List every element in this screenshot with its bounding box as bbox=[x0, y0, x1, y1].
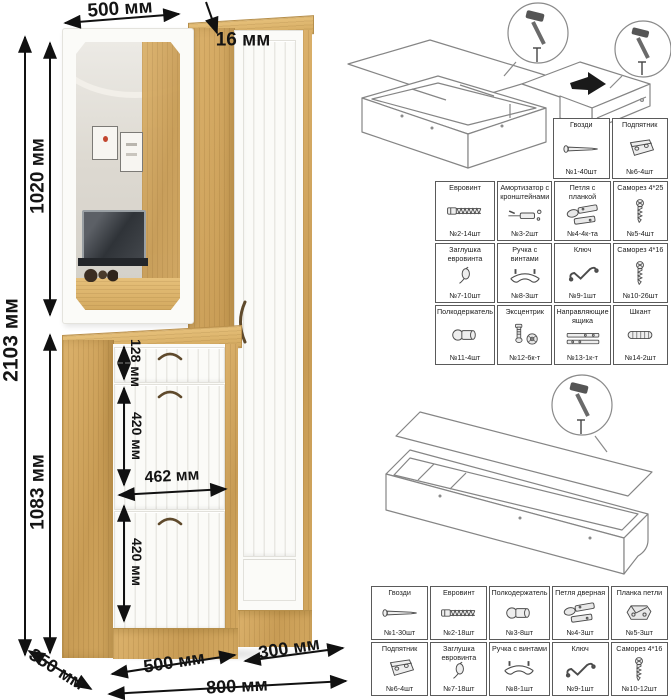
shelfpin-icon bbox=[446, 323, 484, 347]
footpad-icon bbox=[381, 657, 419, 681]
picture-marks bbox=[126, 153, 137, 156]
hardware-item-qty: №9-1шт bbox=[567, 684, 594, 693]
key-icon bbox=[561, 657, 599, 681]
hardware-item: Полкодержатель№3-8шт bbox=[489, 586, 549, 640]
hardware-item-qty: №1-30шт bbox=[384, 628, 415, 637]
wardrobe-right-edge bbox=[303, 30, 312, 610]
hardware-item: Подпятник№6-4шт bbox=[371, 642, 428, 696]
hardware-item: Гвозди№1-30шт bbox=[371, 586, 428, 640]
shelfpin-icon bbox=[500, 601, 538, 625]
hardware-item: Саморез 4*16№10-12шт bbox=[611, 642, 668, 696]
mirror-shelf-reflection bbox=[76, 278, 180, 310]
hammer-callout bbox=[500, 0, 574, 82]
wardrobe-door bbox=[234, 30, 305, 612]
hinge-icon bbox=[561, 601, 599, 625]
mirror-picture-frame bbox=[120, 132, 143, 172]
hardware-item: Евровинт№2-18шт bbox=[430, 586, 487, 640]
hardware-item-qty: №4-4к-та bbox=[567, 229, 598, 238]
hardware-item-qty: №3-2шт bbox=[511, 229, 538, 238]
hardware-item-label: Ключ bbox=[571, 645, 588, 654]
hardware-item: Саморез 4*16№10-26шт bbox=[613, 243, 668, 303]
hingeplate-icon bbox=[620, 601, 658, 625]
dowel-icon bbox=[621, 323, 659, 347]
hardware-item-qty: №8-1шт bbox=[506, 684, 533, 693]
cam-icon bbox=[506, 323, 544, 347]
hardware-item: Шкант№14-2шт bbox=[613, 305, 668, 365]
nail-icon bbox=[381, 601, 419, 625]
footpad-icon bbox=[621, 137, 659, 161]
hardware-item-qty: №3-8шт bbox=[506, 628, 533, 637]
hardware-item-qty: №5-3шт bbox=[626, 628, 653, 637]
hardware-item: Саморез 4*25№5-4шт bbox=[613, 181, 668, 241]
wardrobe-door-rail bbox=[243, 559, 296, 601]
hardware-item: Петля с планкой№4-4к-та bbox=[554, 181, 610, 241]
hardware-item-label: Амортизатор с кронштейнами bbox=[499, 184, 550, 201]
handle-icon bbox=[506, 265, 544, 289]
hardware-item-label: Ключ bbox=[574, 246, 591, 255]
key-icon bbox=[564, 261, 602, 285]
hardware-item: Ручка с винтами№8-3шт bbox=[497, 243, 552, 303]
hardware-item-qty: №2-14шт bbox=[449, 229, 480, 238]
cap-icon bbox=[440, 660, 478, 684]
hardware-item-label: Саморез 4*16 bbox=[617, 246, 663, 255]
hardware-item-label: Саморез 4*25 bbox=[617, 184, 663, 193]
euroscrew-icon bbox=[440, 601, 478, 625]
hardware-item-qty: №9-1шт bbox=[569, 291, 596, 300]
nail-icon bbox=[562, 137, 600, 161]
hardware-item: Заглушка евровинта№7-10шт bbox=[435, 243, 495, 303]
hardware-item-qty: №7-10шт bbox=[449, 291, 480, 300]
hardware-item-label: Евровинт bbox=[449, 184, 481, 193]
hardware-item-label: Ручка с винтами bbox=[492, 645, 547, 654]
hardware-item-label: Полкодержатель bbox=[437, 308, 493, 317]
hardware-table-bottom: Гвозди№1-30шт Евровинт№2-18шт Полкодержа… bbox=[371, 586, 668, 696]
hardware-item-label: Гвозди bbox=[570, 121, 593, 130]
hardware-item: Направляющие ящика№13-1к-т bbox=[554, 305, 610, 365]
hardware-item-label: Эксцентрик bbox=[506, 308, 544, 317]
hardware-item-label: Планка петли bbox=[617, 589, 663, 598]
hardware-item-label: Петля дверная bbox=[555, 589, 605, 598]
dimension-label-upper-height: 1020 мм bbox=[29, 138, 48, 214]
hardware-item-qty: №6-4шт bbox=[386, 684, 413, 693]
hardware-item: Ключ№9-1шт bbox=[552, 642, 609, 696]
wardrobe-door-panel bbox=[243, 40, 296, 557]
dimension-label-thickness: 16 мм bbox=[216, 31, 271, 50]
hardware-item-label: Саморез 4*16 bbox=[616, 645, 662, 654]
mirror-tv-stand bbox=[78, 258, 148, 266]
hardware-item: Полкодержатель№11-4шт bbox=[435, 305, 495, 365]
hammer-callout bbox=[545, 372, 619, 456]
hardware-item-label: Заглушка евровинта bbox=[437, 246, 493, 263]
hardware-item-label: Подпятник bbox=[622, 121, 657, 130]
hardware-item: Подпятник№6-4шт bbox=[612, 118, 669, 179]
hardware-item-qty: №11-4шт bbox=[450, 353, 481, 362]
hardware-item-qty: №2-18шт bbox=[443, 628, 474, 637]
drawer-handle-icon bbox=[157, 351, 183, 361]
hardware-item-label: Подпятник bbox=[382, 645, 417, 654]
hardware-table-top-row1: Гвозди№1-40шт Подпятник№6-4шт bbox=[553, 118, 668, 179]
mirror-glass bbox=[76, 42, 180, 310]
hardware-item-label: Направляющие ящика bbox=[556, 308, 608, 325]
hardware-item-qty: №8-3шт bbox=[511, 291, 538, 300]
hardware-item: Ручка с винтами№8-1шт bbox=[489, 642, 549, 696]
cap-icon bbox=[446, 265, 484, 289]
hardware-item-qty: №4-3шт bbox=[567, 628, 594, 637]
euroscrew-icon bbox=[446, 199, 484, 223]
mirror-frame bbox=[62, 28, 194, 324]
shoe-cabinet-right-edge bbox=[225, 344, 238, 628]
hardware-item-label: Петля с планкой bbox=[556, 184, 608, 201]
slides-icon bbox=[564, 327, 602, 351]
flap1-handle-icon bbox=[157, 389, 183, 399]
hardware-item-qty: №5-4шт bbox=[627, 229, 654, 238]
hardware-item: Эксцентрик№12-6к-т bbox=[497, 305, 552, 365]
screw-icon bbox=[621, 199, 659, 223]
hardware-item-qty: №7-18шт bbox=[443, 684, 474, 693]
hardware-item: Ключ№9-1шт bbox=[554, 243, 610, 303]
hardware-item-label: Шкант bbox=[630, 308, 651, 317]
mirror-tv-reflection bbox=[82, 210, 146, 260]
dimension-label-drawer-height: 128 мм bbox=[129, 339, 143, 387]
shoe-cabinet-side bbox=[62, 340, 114, 658]
hardware-table-top: Евровинт№2-14шт Амортизатор с кронштейна… bbox=[435, 181, 668, 365]
shoe-cabinet-front bbox=[113, 344, 225, 644]
dimension-label-top-width: 500 мм bbox=[87, 0, 153, 21]
gasstrut-icon bbox=[506, 203, 544, 227]
assembly-diagram-tall-box bbox=[380, 376, 671, 584]
mirror-picture-frame bbox=[92, 126, 118, 160]
mirror-wood-reflection bbox=[142, 42, 180, 310]
dimension-label-inner-width: 462 мм bbox=[144, 468, 200, 487]
hardware-item-qty: №1-40шт bbox=[566, 167, 597, 176]
dimension-label-flap2-height: 420 мм bbox=[130, 538, 144, 586]
screw-icon bbox=[620, 657, 658, 681]
hardware-item-qty: №6-4шт bbox=[626, 167, 653, 176]
hardware-item: Петля дверная№4-3шт bbox=[552, 586, 609, 640]
dimension-label-total-height: 2103 мм bbox=[1, 298, 22, 382]
hardware-item-qty: №14-2шт bbox=[625, 353, 656, 362]
flap2-handle-icon bbox=[157, 516, 183, 526]
hardware-item-qty: №10-12шт bbox=[622, 684, 657, 693]
picture-marks bbox=[126, 143, 137, 146]
assembly-sheet: 2103 мм 1020 мм 1083 мм 500 мм 16 мм 128… bbox=[0, 0, 671, 700]
hardware-item: Планка петли№5-3шт bbox=[611, 586, 668, 640]
hardware-item-label: Ручка с винтами bbox=[499, 246, 550, 263]
hardware-item: Заглушка евровинта№7-18шт bbox=[430, 642, 487, 696]
picture-red-mark bbox=[103, 136, 108, 142]
mirror-decor-items bbox=[84, 266, 118, 282]
handle-icon bbox=[500, 657, 538, 681]
dimension-label-lower-height: 1083 мм bbox=[29, 454, 48, 530]
hardware-item-label: Гвозди bbox=[388, 589, 411, 598]
hardware-item: Евровинт№2-14шт bbox=[435, 181, 495, 241]
hardware-item: Гвозди№1-40шт bbox=[553, 118, 610, 179]
hardware-item-qty: №13-1к-т bbox=[567, 353, 598, 362]
hammer-callout bbox=[608, 18, 671, 94]
dimension-label-flap1-height: 420 мм bbox=[130, 412, 144, 460]
furniture-illustration: 2103 мм 1020 мм 1083 мм 500 мм 16 мм 128… bbox=[0, 0, 335, 700]
hardware-item: Амортизатор с кронштейнами№3-2шт bbox=[497, 181, 552, 241]
hardware-item-qty: №12-6к-т bbox=[509, 353, 540, 362]
dimension-label-total-width: 800 мм bbox=[206, 675, 269, 696]
screw-icon bbox=[621, 261, 659, 285]
hinge-icon bbox=[564, 203, 602, 227]
hardware-item-label: Полкодержатель bbox=[491, 589, 547, 598]
hardware-item-qty: №10-26шт bbox=[623, 291, 658, 300]
hardware-item-label: Заглушка евровинта bbox=[432, 645, 485, 660]
hardware-item-label: Евровинт bbox=[443, 589, 475, 598]
